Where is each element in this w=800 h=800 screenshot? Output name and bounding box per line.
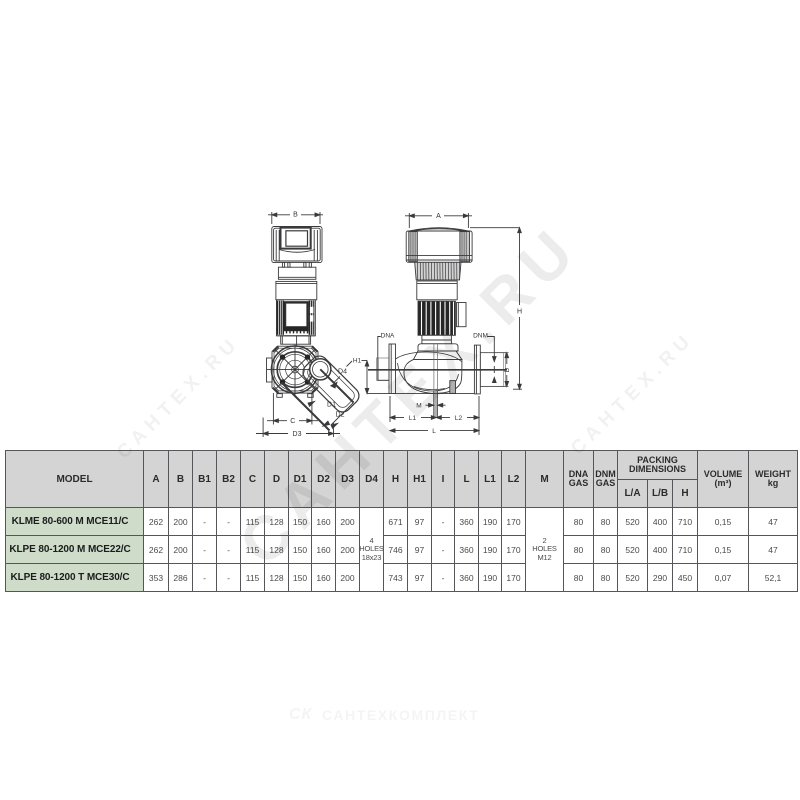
svg-text:H: H [517,309,522,316]
svg-text:M: M [416,403,421,410]
svg-text:H1: H1 [353,358,362,365]
svg-text:L1: L1 [409,415,417,422]
svg-text:D: D [504,367,511,372]
svg-text:L: L [432,428,436,435]
svg-text:A: A [436,213,441,220]
svg-text:L2: L2 [455,415,463,422]
svg-text:D3: D3 [293,431,302,438]
svg-text:B: B [293,212,298,219]
svg-text:DNA: DNA [381,333,395,340]
svg-text:D4: D4 [338,369,347,376]
svg-text:C: C [290,418,295,425]
svg-text:D1: D1 [327,402,336,409]
svg-text:DNM: DNM [473,333,488,340]
svg-text:D2: D2 [336,412,345,419]
